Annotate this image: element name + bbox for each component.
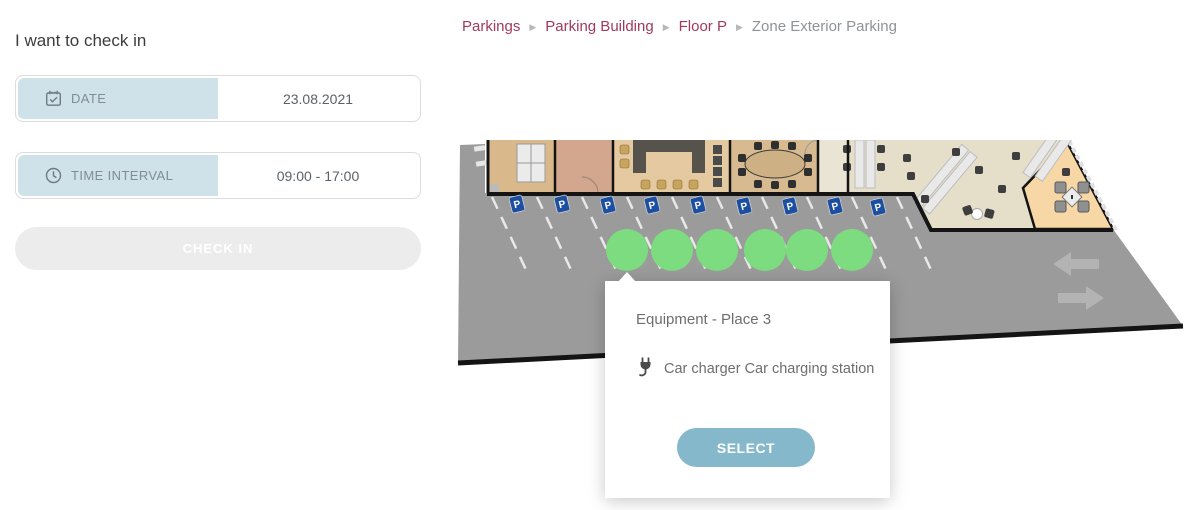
- room1-table: [517, 144, 545, 182]
- check-in-button[interactable]: CHECK IN: [15, 227, 421, 270]
- popup-equipment-text: Car charger Car charging station: [664, 361, 874, 377]
- popup-equipment-row: Car charger Car charging station: [638, 357, 874, 381]
- room-office-2: [555, 140, 613, 193]
- clock-icon: [45, 167, 62, 184]
- plug-icon: [638, 357, 653, 381]
- chevron-right-icon: ▶: [663, 20, 670, 33]
- breadcrumb-parkings[interactable]: Parkings: [462, 18, 520, 35]
- popup-caret: [618, 272, 636, 282]
- time-field-label: TIME INTERVAL: [71, 168, 173, 183]
- available-spot-marker[interactable]: [651, 229, 693, 271]
- spot-popup: Equipment - Place 3 Car charger Car char…: [605, 281, 890, 498]
- oval-table: [745, 150, 805, 178]
- breadcrumb: Parkings ▶ Parking Building ▶ Floor P ▶ …: [462, 18, 897, 35]
- breadcrumb-zone-exterior-parking: Zone Exterior Parking: [752, 18, 897, 35]
- time-field-label-area: TIME INTERVAL: [18, 155, 218, 196]
- available-spot-marker[interactable]: [744, 229, 786, 271]
- page-title: I want to check in: [15, 31, 146, 51]
- date-field[interactable]: DATE 23.08.2021: [15, 75, 421, 122]
- date-field-label: DATE: [71, 91, 106, 106]
- available-spot-marker[interactable]: [696, 229, 738, 271]
- calendar-check-icon: [45, 90, 62, 107]
- time-interval-field[interactable]: TIME INTERVAL 09:00 - 17:00: [15, 152, 421, 199]
- date-field-value[interactable]: 23.08.2021: [218, 78, 418, 119]
- date-field-label-area: DATE: [18, 78, 218, 119]
- popup-title: Equipment - Place 3: [636, 311, 771, 328]
- available-spot-marker[interactable]: [831, 229, 873, 271]
- chevron-right-icon: ▶: [736, 20, 743, 33]
- room1-cabinet: [490, 184, 499, 192]
- breadcrumb-parking-building[interactable]: Parking Building: [545, 18, 653, 35]
- time-field-value[interactable]: 09:00 - 17:00: [218, 155, 418, 196]
- available-spot-marker[interactable]: [606, 229, 648, 271]
- breadcrumb-floor-p[interactable]: Floor P: [679, 18, 727, 35]
- chevron-right-icon: ▶: [529, 20, 536, 33]
- available-spot-marker[interactable]: [786, 229, 828, 271]
- select-button[interactable]: SELECT: [677, 428, 815, 467]
- round-table: [972, 209, 983, 220]
